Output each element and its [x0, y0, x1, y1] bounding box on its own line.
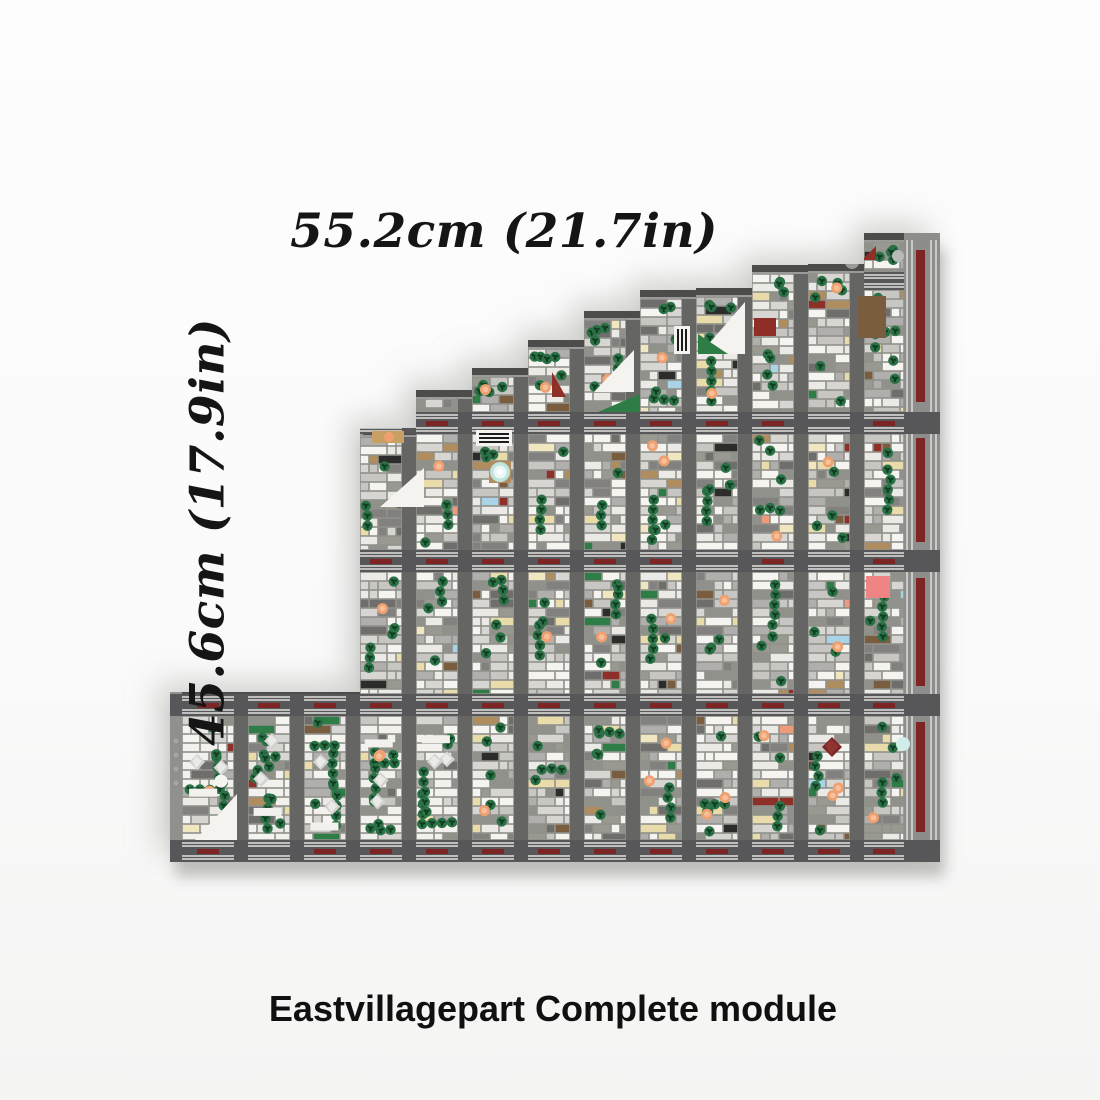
product-image: 55.2cm (21.7in) 45.6cm (17.9in) Eastvill…	[0, 0, 1100, 1100]
caption: Eastvillagepart Complete module	[269, 988, 837, 1030]
lego-module-render	[0, 0, 1100, 1100]
dimension-label-width: 55.2cm (21.7in)	[290, 204, 718, 259]
dimension-label-height: 45.6cm (17.9in)	[181, 318, 236, 746]
